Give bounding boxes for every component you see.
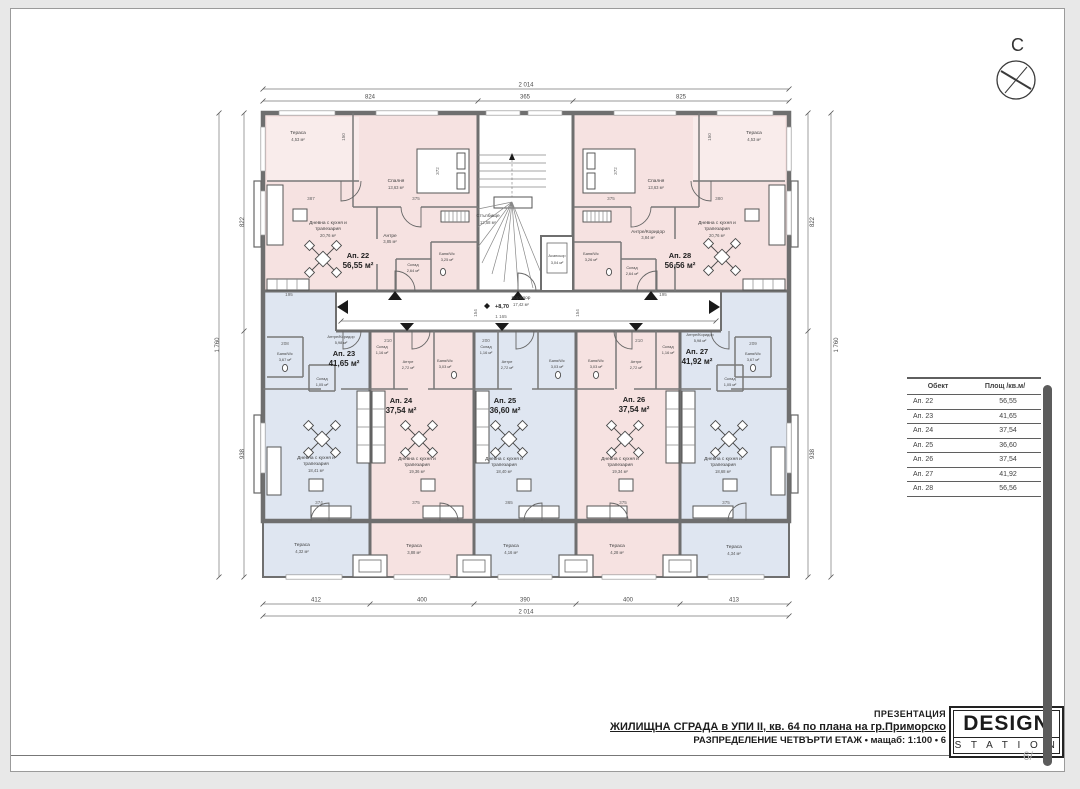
room-label: Дневна с кухня и xyxy=(398,456,436,462)
room-label: Баня/Wc xyxy=(439,251,455,256)
cell-area: 56,56 xyxy=(975,485,1041,492)
room-area: 2,64 м² xyxy=(626,271,639,276)
floor-plan: 2 014 824 365 825 412 400 390 400 413 2 … xyxy=(191,59,856,634)
room-label: Баня/Wc xyxy=(549,358,565,363)
room-area: 20,76 м² xyxy=(709,233,726,238)
room-area: 2,72 м² xyxy=(630,365,643,370)
room-label: Склад xyxy=(662,344,674,349)
room-area: 4,34 м² xyxy=(727,551,741,556)
room-area: 18,68 м² xyxy=(715,469,732,474)
room-area: 12,58 м² xyxy=(480,220,497,225)
room-area: 13,63 м² xyxy=(648,185,665,190)
room-area: 3,25 м² xyxy=(441,257,454,262)
room-label: Склад xyxy=(724,376,736,381)
dim-label: 209 xyxy=(749,341,757,346)
apt22-total: 56,55 м² xyxy=(343,261,374,270)
project-title: ЖИЛИЩНА СГРАДА в УПИ II, кв. 64 по плана… xyxy=(426,721,946,733)
area-table: Обект Площ /кв.м/ Ап. 22 56,55 Ап. 23 41… xyxy=(907,377,1041,497)
room-label: Антре/Коридор xyxy=(686,332,713,337)
table-row: Ап. 24 37,54 xyxy=(907,424,1041,439)
room-area: 2,72 м² xyxy=(402,365,415,370)
room-label: Склад xyxy=(376,344,388,349)
dim-label: 375 xyxy=(412,196,420,201)
viewer-viewport: С xyxy=(0,0,1080,789)
area-table-header: Обект Площ /кв.м/ xyxy=(907,377,1041,395)
dim-label: 375 xyxy=(607,196,615,201)
table-row: Ап. 25 36,60 xyxy=(907,439,1041,454)
room-label: Баня/Wc xyxy=(437,358,453,363)
cell-area: 36,60 xyxy=(975,442,1041,449)
cell-area: 41,65 xyxy=(975,413,1041,420)
room-area: 3,03 м² xyxy=(439,364,452,369)
cell-object: Ап. 26 xyxy=(907,456,975,463)
room-label: трапезария xyxy=(303,462,329,467)
room-label: Тераса xyxy=(503,543,519,549)
title-block: ПРЕЗЕНТАЦИЯ ЖИЛИЩНА СГРАДА в УПИ II, кв.… xyxy=(426,709,946,746)
page-number: 6/ xyxy=(1023,749,1033,763)
room-label: Спалня xyxy=(648,178,665,184)
room-area: 1,16 м² xyxy=(480,350,493,355)
apt23-total: 41,65 м² xyxy=(329,359,360,368)
room-label: Дневна с кухня и xyxy=(485,456,523,462)
room-area: 3,03 м² xyxy=(590,364,603,369)
table-row: Ап. 23 41,65 xyxy=(907,410,1041,425)
room-label: Баня/Wc xyxy=(583,251,599,256)
sheet-title: РАЗПРЕДЕЛЕНИЕ ЧЕТВЪРТИ ЕТАЖ • мащаб: 1:1… xyxy=(426,735,946,746)
room-label: трапезария xyxy=(315,227,341,232)
apt27-total: 41,92 м² xyxy=(682,357,713,366)
dim-label: 150 xyxy=(341,133,346,141)
room-label: Склад xyxy=(316,376,328,381)
dim-label: 1 165 xyxy=(495,314,507,319)
col-object: Обект xyxy=(907,383,969,390)
dim-label: 2 014 xyxy=(518,610,534,616)
room-label: Дневна с кухня и xyxy=(601,456,639,462)
apt25-id: Ап. 25 xyxy=(494,396,516,405)
dim-label: 365 xyxy=(520,95,531,101)
room-area: 4,53 м² xyxy=(291,137,305,142)
room-label: Асансьор xyxy=(548,253,565,258)
room-area: 5,98 м² xyxy=(335,340,348,345)
room-label: Спалня xyxy=(388,178,405,184)
room-area: 3,03 м² xyxy=(551,364,564,369)
dim-label: 1 760 xyxy=(834,337,840,353)
level-mark: +8,70 xyxy=(495,304,509,310)
dim-label: 824 xyxy=(365,95,376,101)
room-label: Тераса xyxy=(406,543,422,549)
room-area: 3,04 м² xyxy=(551,260,564,265)
north-letter: С xyxy=(1011,35,1024,56)
room-label: Коридор xyxy=(512,295,531,301)
dim-label: 1 760 xyxy=(215,337,221,353)
room-label: Тераса xyxy=(746,130,762,136)
room-label: трапезария xyxy=(704,227,730,232)
dim-label: 150 xyxy=(707,133,712,141)
room-label: Антре/Коридор xyxy=(327,334,354,339)
apt24-total: 37,54 м² xyxy=(386,406,417,415)
dim-label: 938 xyxy=(240,448,246,459)
room-label: Склад xyxy=(407,262,419,267)
room-label: трапезария xyxy=(607,463,633,468)
apt26-id: Ап. 26 xyxy=(623,395,645,404)
dim-label: 822 xyxy=(240,216,246,227)
room-area: 13,63 м² xyxy=(388,185,405,190)
dim-label: 375 xyxy=(722,500,730,505)
dim-label: 400 xyxy=(623,598,634,604)
dim-label: 200 xyxy=(482,338,490,343)
compass-icon xyxy=(993,57,1039,103)
room-area: 5,98 м² xyxy=(694,338,707,343)
room-label: Тераса xyxy=(726,544,742,550)
cell-object: Ап. 25 xyxy=(907,442,975,449)
apt25-total: 36,60 м² xyxy=(490,406,521,415)
apt27-id: Ап. 27 xyxy=(686,347,708,356)
dim-label: 938 xyxy=(810,448,816,459)
apt22-id: Ап. 22 xyxy=(347,251,369,260)
room-area: 3,84 м² xyxy=(641,235,655,240)
room-label: трапезария xyxy=(710,463,736,468)
room-area: 20,76 м² xyxy=(320,233,337,238)
table-row: Ап. 27 41,92 xyxy=(907,468,1041,483)
room-area: 1,05 м² xyxy=(316,382,329,387)
cell-object: Ап. 28 xyxy=(907,485,975,492)
drawing-sheet: С xyxy=(10,8,1065,772)
dim-label: 365 xyxy=(505,500,513,505)
apt26-total: 37,54 м² xyxy=(619,405,650,414)
room-area: 3,85 м² xyxy=(383,239,397,244)
room-label: Дневна с кухня и xyxy=(309,220,347,226)
cell-object: Ап. 23 xyxy=(907,413,975,420)
room-label: Тераса xyxy=(294,542,310,548)
room-area: 1,16 м² xyxy=(376,350,389,355)
cell-object: Ап. 22 xyxy=(907,398,975,405)
title-block-rule xyxy=(11,755,1064,756)
room-label: Дневна с кухня и xyxy=(297,455,335,461)
room-area: 3,26 м² xyxy=(585,257,598,262)
room-label: Склад xyxy=(480,344,492,349)
apt28-total: 56,56 м² xyxy=(665,261,696,270)
room-area: 19,36 м² xyxy=(409,469,426,474)
table-row: Ап. 28 56,56 xyxy=(907,482,1041,497)
apt24-id: Ап. 24 xyxy=(390,396,413,405)
room-area: 1,05 м² xyxy=(724,382,737,387)
room-area: 4,32 м² xyxy=(295,549,309,554)
dim-label: 154 xyxy=(575,309,580,317)
room-area: 4,28 м² xyxy=(610,550,624,555)
room-label: Баня/Wc xyxy=(588,358,604,363)
room-label: Антре xyxy=(631,359,642,364)
room-label: Антре xyxy=(502,359,513,364)
room-area: 17,42 м² xyxy=(513,302,530,307)
col-area: Площ /кв.м/ xyxy=(969,383,1041,390)
dim-label: 208 xyxy=(281,341,289,346)
room-label: Баня/Wc xyxy=(277,351,293,356)
cell-area: 41,92 xyxy=(975,471,1041,478)
cell-object: Ап. 27 xyxy=(907,471,975,478)
dim-label: 210 xyxy=(384,338,392,343)
room-label: Дневна с кухня и xyxy=(704,456,742,462)
dim-label: 210 xyxy=(635,338,643,343)
room-area: 1,16 м² xyxy=(662,350,675,355)
dim-label: 412 xyxy=(311,598,322,604)
cell-area: 37,54 xyxy=(975,427,1041,434)
room-label: Дневна с кухня и xyxy=(698,220,736,226)
cell-area: 56,55 xyxy=(975,398,1041,405)
dim-label: 380 xyxy=(715,196,723,201)
apt23-id: Ап. 23 xyxy=(333,349,355,358)
room-area: 4,53 м² xyxy=(747,137,761,142)
dim-label: 372 xyxy=(435,167,440,175)
room-area: 4,16 м² xyxy=(504,550,518,555)
dim-label: 413 xyxy=(729,598,740,604)
dim-label: 374 xyxy=(315,500,323,505)
room-label: Тераса xyxy=(290,130,306,136)
room-label: Антре xyxy=(403,359,414,364)
room-area: 3,67 м² xyxy=(279,357,292,362)
room-label: трапезария xyxy=(404,463,430,468)
cell-object: Ап. 24 xyxy=(907,427,975,434)
room-area: 18,40 м² xyxy=(496,469,513,474)
dim-label: 195 xyxy=(285,292,293,297)
room-label: Тераса xyxy=(609,543,625,549)
room-area: 19,34 м² xyxy=(612,469,629,474)
apt28-id: Ап. 28 xyxy=(669,251,691,260)
room-label: Баня/Wc xyxy=(745,351,761,356)
cell-area: 37,54 xyxy=(975,456,1041,463)
dim-label: 375 xyxy=(412,500,420,505)
room-label: Стълбище xyxy=(476,213,500,219)
presentation-label: ПРЕЗЕНТАЦИЯ xyxy=(426,709,946,719)
room-area: 2,64 м² xyxy=(407,268,420,273)
table-row: Ап. 26 37,54 xyxy=(907,453,1041,468)
dim-label: 372 xyxy=(613,167,618,175)
dim-label: 154 xyxy=(473,309,478,317)
room-label: Склад xyxy=(626,265,638,270)
room-label: трапезария xyxy=(491,463,517,468)
room-area: 3,67 м² xyxy=(747,357,760,362)
room-area: 2,72 м² xyxy=(501,365,514,370)
dim-label: 400 xyxy=(417,598,428,604)
dim-label: 822 xyxy=(810,216,816,227)
dim-label: 2 014 xyxy=(518,83,534,89)
dim-label: 195 xyxy=(659,292,667,297)
dim-label: 375 xyxy=(619,500,627,505)
table-row: Ап. 22 56,55 xyxy=(907,395,1041,410)
dim-label: 390 xyxy=(520,598,531,604)
dim-label: 825 xyxy=(676,95,687,101)
room-area: 3,88 м² xyxy=(407,550,421,555)
room-area: 18,41 м² xyxy=(308,468,325,473)
dim-label: 387 xyxy=(307,196,315,201)
vertical-scrollbar-thumb[interactable] xyxy=(1043,385,1052,766)
